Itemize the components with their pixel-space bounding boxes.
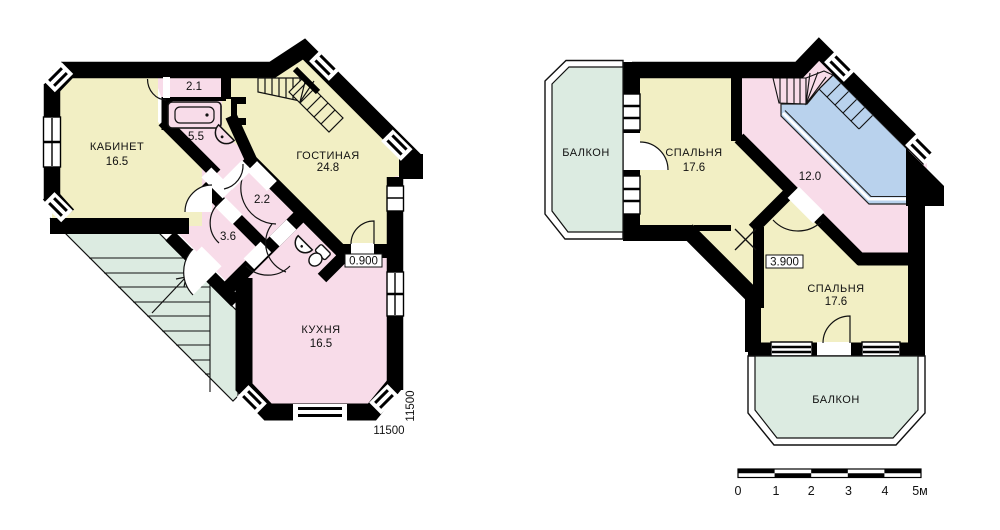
svg-text:11500: 11500 bbox=[405, 390, 417, 421]
svg-text:4: 4 bbox=[882, 484, 889, 498]
svg-text:КАБИНЕТ: КАБИНЕТ bbox=[90, 141, 144, 153]
svg-text:0.900: 0.900 bbox=[349, 256, 378, 268]
svg-text:КУХНЯ: КУХНЯ bbox=[301, 324, 340, 336]
svg-text:2.2: 2.2 bbox=[254, 194, 270, 206]
svg-text:3: 3 bbox=[845, 484, 852, 498]
svg-text:5м: 5м bbox=[912, 484, 928, 498]
svg-text:БАЛКОН: БАЛКОН bbox=[812, 394, 860, 406]
svg-text:БАЛКОН: БАЛКОН bbox=[562, 147, 610, 159]
svg-text:17.6: 17.6 bbox=[683, 162, 705, 174]
svg-text:СПАЛЬНЯ: СПАЛЬНЯ bbox=[665, 147, 722, 159]
svg-text:0: 0 bbox=[735, 484, 742, 498]
svg-text:3.6: 3.6 bbox=[220, 231, 236, 243]
svg-text:17.6: 17.6 bbox=[825, 296, 847, 308]
svg-text:16.5: 16.5 bbox=[106, 156, 128, 168]
svg-text:СПАЛЬНЯ: СПАЛЬНЯ bbox=[807, 283, 864, 295]
svg-text:16.5: 16.5 bbox=[310, 338, 332, 350]
svg-text:2.1: 2.1 bbox=[186, 81, 202, 93]
svg-text:ГОСТИНАЯ: ГОСТИНАЯ bbox=[296, 150, 359, 162]
svg-text:2: 2 bbox=[808, 484, 815, 498]
svg-text:11500: 11500 bbox=[373, 425, 404, 437]
svg-text:5.5: 5.5 bbox=[188, 131, 204, 143]
svg-text:24.8: 24.8 bbox=[317, 162, 339, 174]
svg-text:12.0: 12.0 bbox=[799, 171, 821, 183]
svg-text:3.900: 3.900 bbox=[770, 257, 799, 269]
svg-text:1: 1 bbox=[773, 484, 780, 498]
